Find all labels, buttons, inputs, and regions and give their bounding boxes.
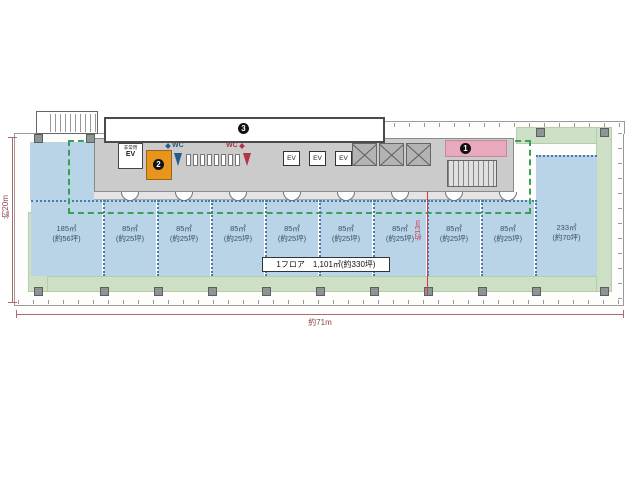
depth-dimension-line — [427, 191, 428, 295]
structural-column — [34, 134, 43, 143]
toilet-stall — [214, 154, 219, 166]
height-dimension-cap-top — [8, 137, 17, 138]
floor-summary-value: 1,101㎡(約330坪) — [313, 259, 376, 270]
room-area-tsubo: (約25坪) — [266, 234, 318, 244]
wc-men-label: WC — [166, 142, 184, 149]
floor-summary-box: 1フロア 1,101㎡(約330坪) — [262, 257, 390, 272]
wc-men-icon — [165, 143, 171, 149]
toilet-stall — [186, 154, 191, 166]
tenant-room: 233㎡ (約70坪) — [536, 155, 597, 276]
elevator-shaft-1 — [352, 143, 377, 166]
structural-column — [536, 128, 545, 137]
room-area-sqm: 185㎡ — [31, 224, 102, 234]
structural-column — [600, 128, 609, 137]
toilet-stall — [207, 154, 212, 166]
man-pictogram-icon — [174, 153, 182, 166]
wc-women-icon — [239, 143, 245, 149]
room-area-tsubo: (約25坪) — [104, 234, 156, 244]
elevator-2: EV — [309, 151, 326, 166]
room-area-sqm: 85㎡ — [320, 224, 372, 234]
height-dimension-label: 約20m — [0, 195, 11, 219]
staircase-west — [36, 111, 98, 134]
room-area-sqm: 85㎡ — [266, 224, 318, 234]
room-area-tsubo: (約70坪) — [536, 233, 597, 243]
width-dimension-line — [16, 314, 624, 315]
structural-column — [478, 287, 487, 296]
woman-pictogram-icon — [243, 153, 251, 166]
room-area-label: 85㎡ (約25坪) — [320, 224, 372, 244]
room-area-label: 85㎡ (約25坪) — [212, 224, 264, 244]
width-dimension-label: 約71m — [0, 317, 640, 328]
depth-dimension-label: 約13m — [414, 220, 424, 241]
stair-treads — [50, 114, 96, 132]
structural-column — [34, 287, 43, 296]
emergency-elevator-label: 非常用 — [124, 145, 138, 150]
floor-summary-label: 1フロア — [276, 259, 304, 270]
room-area-sqm: 85㎡ — [158, 224, 210, 234]
structural-column — [370, 287, 379, 296]
structural-column — [424, 287, 433, 296]
structural-column — [532, 287, 541, 296]
structural-column — [316, 287, 325, 296]
room-area-tsubo: (約25坪) — [428, 234, 480, 244]
structural-column — [86, 134, 95, 143]
structural-column — [600, 287, 609, 296]
toilet-stall — [221, 154, 226, 166]
room-area-label: 185㎡ (約56坪) — [31, 224, 102, 244]
partition-dotted-line — [157, 200, 159, 276]
structural-column — [262, 287, 271, 296]
service-room — [445, 140, 507, 157]
elevator-1: EV — [283, 151, 300, 166]
partition-dotted-line — [211, 200, 213, 276]
height-dimension-cap-bottom — [8, 302, 17, 303]
partition-dotted-line — [103, 200, 105, 276]
room-area-label: 85㎡ (約25坪) — [428, 224, 480, 244]
room-area-tsubo: (約25坪) — [158, 234, 210, 244]
room-area-tsubo: (約25坪) — [320, 234, 372, 244]
elevator-shaft-2 — [379, 143, 404, 166]
emergency-elevator: 非常用 EV — [118, 143, 143, 169]
floor-plan: { "rooms": [ {"area":"185㎡","tsubo":"(約5… — [0, 0, 640, 480]
balcony-right — [596, 127, 612, 292]
height-dimension-line — [12, 137, 13, 303]
structural-column — [208, 287, 217, 296]
elevator-3: EV — [335, 151, 352, 166]
toilet-stall — [228, 154, 233, 166]
room-area-sqm: 85㎡ — [104, 224, 156, 234]
toilet-stall — [193, 154, 198, 166]
room-area-sqm: 233㎡ — [536, 223, 597, 233]
marker-2: 2 — [153, 159, 164, 170]
room-area-label: 85㎡ (約25坪) — [104, 224, 156, 244]
room-area-label: 233㎡ (約70坪) — [536, 223, 597, 243]
room-area-tsubo: (約56坪) — [31, 234, 102, 244]
partition-dotted-line — [535, 200, 537, 276]
scale-ticks-right — [618, 127, 622, 299]
room-area-tsubo: (約25坪) — [212, 234, 264, 244]
staircase-east — [447, 160, 497, 187]
emergency-elevator-ev-label: EV — [119, 151, 142, 159]
partition-dotted-line — [481, 200, 483, 276]
room-area-sqm: 85㎡ — [428, 224, 480, 234]
marker-1: 1 — [460, 143, 471, 154]
room-area-sqm: 85㎡ — [482, 224, 534, 234]
room-area-label: 85㎡ (約25坪) — [158, 224, 210, 244]
scale-ticks-bottom — [18, 300, 620, 304]
elevator-shaft-3 — [406, 143, 431, 166]
toilet-stall — [200, 154, 205, 166]
room-area-label: 85㎡ (約25坪) — [482, 224, 534, 244]
room-area-label: 85㎡ (約25坪) — [266, 224, 318, 244]
structural-column — [154, 287, 163, 296]
wc-women-label: WC — [226, 142, 244, 149]
room-area-tsubo: (約25坪) — [482, 234, 534, 244]
toilet-stall — [235, 154, 240, 166]
room-area-sqm: 85㎡ — [212, 224, 264, 234]
marker-3: 3 — [238, 123, 249, 134]
structural-column — [100, 287, 109, 296]
